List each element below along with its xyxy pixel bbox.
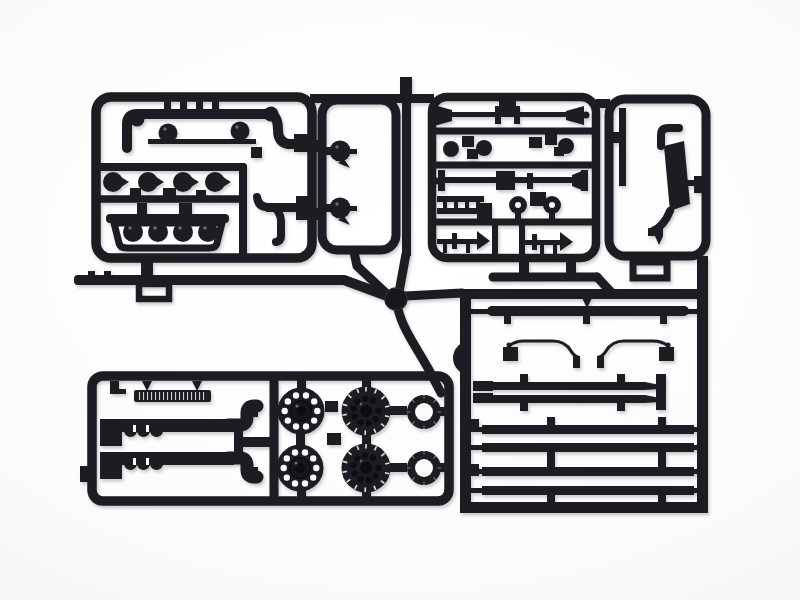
chassis-frame-left <box>460 290 471 513</box>
chassis-rail-parts <box>469 417 706 503</box>
sprue-svg: Black plastic model kit sprue photograph… <box>0 0 800 600</box>
dome-piston <box>173 222 193 242</box>
fork-bracket-part <box>257 196 313 242</box>
small-loop-part <box>139 284 169 299</box>
sprue-photo: Black plastic model kit sprue photograph… <box>0 0 800 600</box>
chassis-frame-right <box>697 256 708 513</box>
bridge-tab <box>308 140 325 152</box>
pulley-parts <box>509 192 561 222</box>
wheel-ring <box>407 451 441 485</box>
small-loop-part <box>633 262 667 278</box>
vertical-runner <box>402 98 411 256</box>
runner <box>399 254 406 292</box>
edge-tab <box>80 466 95 482</box>
exhaust-pipe-lower <box>100 430 275 479</box>
ladder-grille-part <box>437 196 492 219</box>
dome-piston <box>148 222 168 242</box>
fender-band-part <box>648 128 707 245</box>
gate-pip <box>88 271 95 276</box>
chassis-frame-bottom <box>460 502 708 513</box>
sprue-section-chassis <box>453 256 708 513</box>
sprue-section-exhaust-wheels <box>80 376 449 501</box>
wheel-ring <box>407 395 441 429</box>
tread-plate-part <box>110 381 211 402</box>
sprue-section-door-panel <box>596 99 707 278</box>
cap-knobs-row <box>103 172 231 198</box>
knob-fittings-row <box>443 134 574 159</box>
air-cleaner-domes <box>148 122 262 159</box>
oil-pan-tub <box>106 203 229 248</box>
pillar-strip-part <box>619 108 626 186</box>
feed-gate-stub <box>400 77 412 96</box>
bolt-pattern-wheel-hub <box>342 444 391 493</box>
gate-tab <box>499 99 516 112</box>
bridge-tab <box>308 208 325 220</box>
dome-piston <box>123 222 143 242</box>
bolt-pattern-wheel-hub <box>342 387 391 436</box>
perforated-wheel-hub <box>278 388 325 435</box>
drag-link-bars <box>473 374 666 411</box>
axle-rod-part <box>433 170 589 191</box>
sprue-section-engine <box>96 97 313 258</box>
cab-window-frame-part <box>322 100 396 250</box>
u-pipe-part <box>127 107 312 153</box>
leaf-spring-part <box>470 306 706 324</box>
gate-stub <box>141 257 153 278</box>
front-runner-bar <box>74 275 346 285</box>
dome-lamp-parts <box>326 141 357 226</box>
runner <box>405 293 462 296</box>
sprue-section-fittings <box>429 97 597 258</box>
gate-pip <box>104 271 111 276</box>
chassis-frame-top <box>460 289 708 299</box>
perforated-wheel-hub <box>277 445 324 492</box>
dome-piston <box>198 222 218 242</box>
sprue-gate-node <box>385 288 407 310</box>
brake-line-parts <box>503 341 674 368</box>
sprue-section-cab-panel <box>308 77 434 256</box>
small-horn-parts <box>437 222 573 255</box>
gate-tab <box>611 132 621 143</box>
